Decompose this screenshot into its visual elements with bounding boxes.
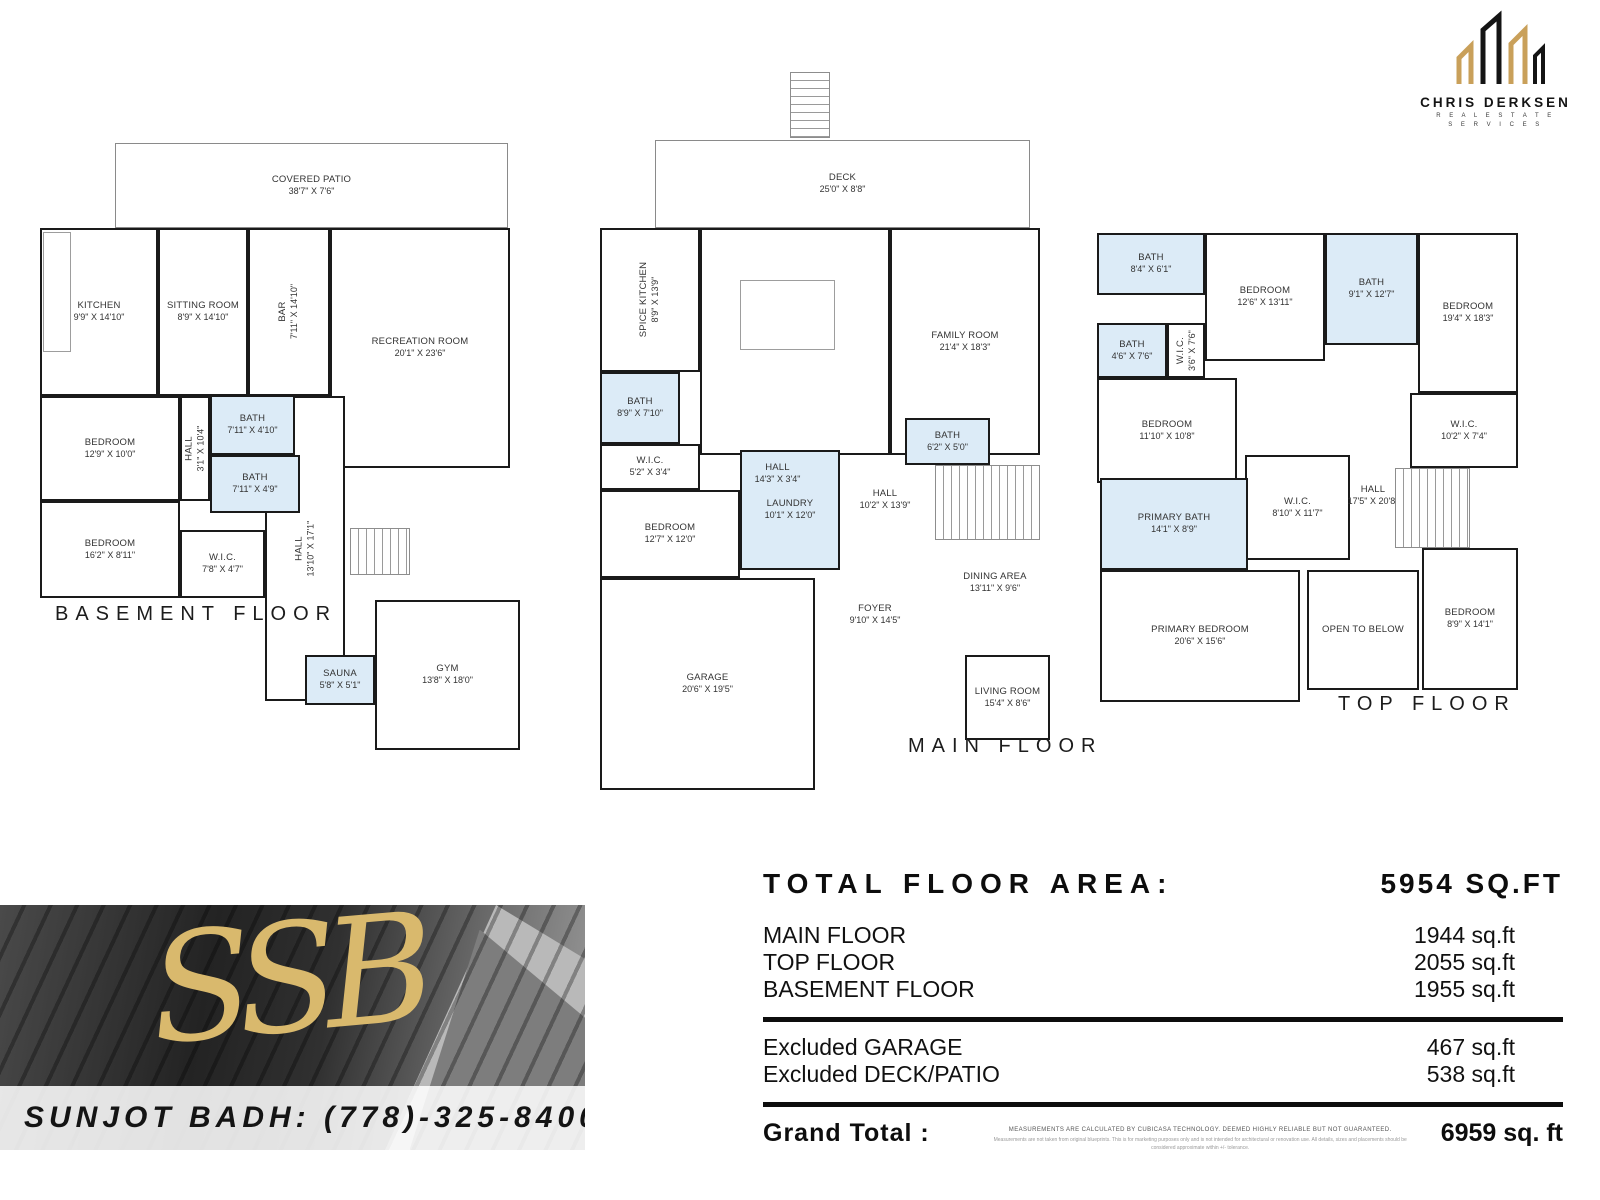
room-name: BAR xyxy=(277,284,289,339)
room-dims: 4'6" X 7'6" xyxy=(1112,351,1153,362)
room-basement-hall-small: HALL3'1" X 10'4" xyxy=(180,396,210,501)
room-basement-bedroom-2: BEDROOM16'2" X 8'11" xyxy=(40,501,180,598)
room-name: BEDROOM xyxy=(1443,301,1494,313)
room-recreation-room: RECREATION ROOM20'1" X 23'6" xyxy=(330,228,510,468)
room-name: BEDROOM xyxy=(85,538,136,550)
row-label: MAIN FLOOR xyxy=(763,922,906,949)
row-label: TOP FLOOR xyxy=(763,949,895,976)
room-top-bedroom-2: BEDROOM19'4" X 18'3" xyxy=(1418,233,1518,393)
room-dims: 8'9" X 7'10" xyxy=(617,408,663,419)
room-dims: 21'4" X 18'3" xyxy=(931,342,998,353)
brokerage-subtitle-2: S E R V I C E S xyxy=(1398,122,1593,128)
summary-row-top: TOP FLOOR 2055 sq.ft xyxy=(763,949,1563,976)
room-name: W.I.C. xyxy=(1272,496,1322,508)
stairs-top xyxy=(1395,468,1470,548)
room-name: SAUNA xyxy=(320,668,361,680)
room-dims: 8'9" X 13'9" xyxy=(650,262,661,337)
room-name: KITCHEN xyxy=(74,300,125,312)
room-spice-kitchen: SPICE KITCHEN8'9" X 13'9" xyxy=(600,228,700,372)
grand-total-label: Grand Total : xyxy=(763,1119,930,1148)
room-basement-bath-1: BATH7'11" X 4'10" xyxy=(210,395,295,455)
stairs-basement xyxy=(350,528,410,575)
room-name: BATH xyxy=(232,472,277,484)
excluded-rows: Excluded GARAGE 467 sq.ft Excluded DECK/… xyxy=(763,1034,1563,1088)
room-primary-bath: PRIMARY BATH14'1" X 8'9" xyxy=(1100,478,1248,570)
room-name: HALL xyxy=(1348,484,1399,496)
room-name: HALL xyxy=(183,426,195,472)
row-label: Excluded DECK/PATIO xyxy=(763,1061,1000,1088)
room-name: BATH xyxy=(1112,339,1153,351)
room-dims: 12'9" X 10'0" xyxy=(85,449,136,460)
room-covered-patio: COVERED PATIO38'7" X 7'6" xyxy=(115,143,508,228)
room-name: GYM xyxy=(422,663,473,675)
brokerage-subtitle-1: R E A L E S T A T E xyxy=(1398,113,1593,119)
room-garage: GARAGE20'6" X 19'5" xyxy=(600,578,815,790)
room-foyer: FOYER9'10" X 14'5" xyxy=(815,585,935,645)
room-dims: 13'11" X 9'6" xyxy=(963,583,1026,594)
grand-total-value: 6959 sq. ft xyxy=(1441,1119,1563,1148)
floor-plan-flyer: CHRIS DERKSEN R E A L E S T A T E S E R … xyxy=(0,0,1600,1200)
top-floor-title: TOP FLOOR xyxy=(1338,693,1516,716)
room-name: FOYER xyxy=(850,603,901,615)
room-dims: 10'2" X 7'4" xyxy=(1441,431,1487,442)
room-dims: 9'9" X 14'10" xyxy=(74,312,125,323)
room-name: BATH xyxy=(617,396,663,408)
floorplan-main: DECK25'0" X 8'8" SPICE KITCHEN8'9" X 13'… xyxy=(570,65,1050,800)
summary-row-main: MAIN FLOOR 1944 sq.ft xyxy=(763,922,1563,949)
room-name: GARAGE xyxy=(682,672,733,684)
floorplan-top: BATH8'4" X 6'1" BEDROOM12'6" X 13'11" BA… xyxy=(1093,228,1525,723)
divider-rule-1 xyxy=(763,1017,1563,1022)
room-name: W.I.C. xyxy=(1441,419,1487,431)
room-living-room: LIVING ROOM15'4" X 8'6" xyxy=(965,655,1050,740)
room-name: HALL xyxy=(860,488,911,500)
room-dims: 8'9" X 14'1" xyxy=(1445,619,1496,630)
room-top-bath-3: BATH4'6" X 7'6" xyxy=(1097,323,1167,378)
room-main-bedroom: BEDROOM12'7" X 12'0" xyxy=(600,490,740,578)
floorplan-basement: COVERED PATIO38'7" X 7'6" KITCHEN9'9" X … xyxy=(35,140,525,805)
room-dims: 15'4" X 8'6" xyxy=(975,698,1041,709)
room-top-bath-2: BATH9'1" X 12'7" xyxy=(1325,233,1418,345)
room-name: LAUNDRY xyxy=(765,498,816,510)
room-dims: 5'2" X 3'4" xyxy=(630,467,671,478)
room-name: W.I.C. xyxy=(630,455,671,467)
room-dims: 13'8" X 18'0" xyxy=(422,675,473,686)
room-dims: 8'4" X 6'1" xyxy=(1131,264,1172,275)
divider-rule-2 xyxy=(763,1102,1563,1107)
row-value: 1944 sq.ft xyxy=(1414,922,1563,949)
room-dims: 14'3" X 3'4" xyxy=(755,474,801,485)
room-dims: 7'11" X 4'10" xyxy=(227,425,277,436)
agent-contact: SUNJOT BADH: (778)-325-8400 xyxy=(0,1101,585,1135)
room-name: FAMILY ROOM xyxy=(931,330,998,342)
brokerage-name: CHRIS DERKSEN xyxy=(1398,95,1593,110)
room-gym: GYM13'8" X 18'0" xyxy=(375,600,520,750)
room-name: BEDROOM xyxy=(1237,285,1292,297)
room-dims: 16'2" X 8'11" xyxy=(85,550,136,561)
room-name: SITTING ROOM xyxy=(167,300,239,312)
room-name: BATH xyxy=(227,413,277,425)
room-main-hall-1: HALL14'3" X 3'4" xyxy=(700,455,855,493)
room-name: OPEN TO BELOW xyxy=(1322,624,1404,636)
room-dims: 9'10" X 14'5" xyxy=(850,615,901,626)
room-name: LIVING ROOM xyxy=(975,686,1041,698)
ssb-monogram: SSB xyxy=(143,905,428,1078)
room-top-bedroom-3: BEDROOM11'10" X 10'8" xyxy=(1097,378,1237,483)
room-dims: 25'0" X 8'8" xyxy=(820,184,866,195)
stairs-main xyxy=(935,465,1040,540)
total-floor-area-value: 5954 SQ.FT xyxy=(1380,868,1563,900)
room-top-bedroom-1: BEDROOM12'6" X 13'11" xyxy=(1205,233,1325,361)
excluded-row-deck-patio: Excluded DECK/PATIO 538 sq.ft xyxy=(763,1061,1563,1088)
stairs-deck xyxy=(790,72,830,138)
room-name: BATH xyxy=(927,430,968,442)
room-name: BEDROOM xyxy=(1139,419,1194,431)
room-basement-bedroom-1: BEDROOM12'9" X 10'0" xyxy=(40,396,180,501)
room-dims: 3'6" X 7'6" xyxy=(1186,330,1197,371)
room-basement-bath-2: BATH7'11" X 4'9" xyxy=(210,455,300,513)
room-basement-wic: W.I.C.7'8" X 4'7" xyxy=(180,530,265,598)
room-name: RECREATION ROOM xyxy=(372,336,469,348)
agent-photo-block: SSB SUNJOT BADH: (778)-325-8400 xyxy=(0,905,585,1150)
room-dims: 13'10" X 17'1" xyxy=(305,521,316,577)
room-main-bath-1: BATH8'9" X 7'10" xyxy=(600,372,680,444)
room-top-bath-1: BATH8'4" X 6'1" xyxy=(1097,233,1205,295)
room-top-wic-2: W.I.C.10'2" X 7'4" xyxy=(1410,393,1518,468)
room-dims: 7'8" X 4'7" xyxy=(202,564,243,575)
room-dims: 12'7" X 12'0" xyxy=(645,534,696,545)
room-dims: 9'1" X 12'7" xyxy=(1349,289,1395,300)
room-dims: 3'1" X 10'4" xyxy=(195,426,206,472)
summary-heading: TOTAL FLOOR AREA: 5954 SQ.FT xyxy=(763,868,1563,900)
row-value: 467 sq.ft xyxy=(1427,1034,1563,1061)
room-name: DECK xyxy=(820,172,866,184)
room-dims: 7'11" X 4'9" xyxy=(232,484,277,495)
room-dims: 12'6" X 13'11" xyxy=(1237,297,1292,308)
room-name: PRIMARY BEDROOM xyxy=(1151,624,1249,636)
total-floor-area-label: TOTAL FLOOR AREA: xyxy=(763,868,1173,900)
row-value: 2055 sq.ft xyxy=(1414,949,1563,976)
room-dims: 8'9" X 14'10" xyxy=(167,312,239,323)
room-main-wic: W.I.C.5'2" X 3'4" xyxy=(600,444,700,490)
room-dims: 20'6" X 15'6" xyxy=(1151,636,1249,647)
room-name: COVERED PATIO xyxy=(272,174,351,186)
room-dims: 38'7" X 7'6" xyxy=(272,186,351,197)
room-dims: 11'10" X 10'8" xyxy=(1139,431,1194,442)
room-name: BEDROOM xyxy=(85,437,136,449)
room-name: PRIMARY BATH xyxy=(1138,512,1211,524)
brokerage-logo: CHRIS DERKSEN R E A L E S T A T E S E R … xyxy=(1398,8,1593,128)
room-dims: 10'1" X 12'0" xyxy=(765,510,816,521)
room-name: BATH xyxy=(1349,277,1395,289)
room-name: BATH xyxy=(1131,252,1172,264)
room-dims: 10'2" X 13'9" xyxy=(860,500,911,511)
room-name: W.I.C. xyxy=(202,552,243,564)
room-sitting-room: SITTING ROOM8'9" X 14'10" xyxy=(158,228,248,396)
excluded-row-garage: Excluded GARAGE 467 sq.ft xyxy=(763,1034,1563,1061)
buildings-logo-icon xyxy=(1421,8,1571,88)
room-dims: 8'10" X 11'7" xyxy=(1272,508,1322,519)
basement-floor-title: BASEMENT FLOOR xyxy=(55,603,337,626)
room-sauna: SAUNA5'8" X 5'1" xyxy=(305,655,375,705)
room-dims: 7'11" X 14'10" xyxy=(289,284,300,339)
room-name: HALL xyxy=(293,521,305,577)
grand-total-row: Grand Total : MEASUREMENTS ARE CALCULATE… xyxy=(763,1119,1563,1152)
room-dims: 19'4" X 18'3" xyxy=(1443,313,1494,324)
room-deck: DECK25'0" X 8'8" xyxy=(655,140,1030,228)
disclaimer: MEASUREMENTS ARE CALCULATED BY CUBICASA … xyxy=(990,1127,1411,1152)
room-main-hall-2: HALL10'2" X 13'9" xyxy=(840,435,930,565)
row-value: 1955 sq.ft xyxy=(1414,976,1563,1003)
room-dims: 17'5" X 20'8" xyxy=(1348,496,1399,507)
room-top-bedroom-4: BEDROOM8'9" X 14'1" xyxy=(1422,548,1518,690)
disclaimer-line-2: Measurements are not taken from original… xyxy=(990,1137,1411,1152)
room-dims: 14'1" X 8'9" xyxy=(1138,524,1211,535)
row-label: Excluded GARAGE xyxy=(763,1034,962,1061)
room-dims: 20'1" X 23'6" xyxy=(372,348,469,359)
contact-band: SUNJOT BADH: (778)-325-8400 xyxy=(0,1086,585,1150)
floor-area-summary: TOTAL FLOOR AREA: 5954 SQ.FT MAIN FLOOR … xyxy=(763,868,1563,1152)
summary-row-basement: BASEMENT FLOOR 1955 sq.ft xyxy=(763,976,1563,1003)
room-name: W.I.C. xyxy=(1174,330,1186,371)
room-top-wic-1: W.I.C.3'6" X 7'6" xyxy=(1167,323,1205,378)
room-primary-bedroom: PRIMARY BEDROOM20'6" X 15'6" xyxy=(1100,570,1300,702)
disclaimer-line-1: MEASUREMENTS ARE CALCULATED BY CUBICASA … xyxy=(990,1127,1411,1133)
room-dining-area: DINING AREA13'11" X 9'6" xyxy=(950,535,1040,630)
room-bar: BAR7'11" X 14'10" xyxy=(248,228,330,396)
row-value: 538 sq.ft xyxy=(1427,1061,1563,1088)
floor-rows: MAIN FLOOR 1944 sq.ft TOP FLOOR 2055 sq.… xyxy=(763,922,1563,1003)
kitchen-counter xyxy=(43,232,71,352)
room-name: BEDROOM xyxy=(1445,607,1496,619)
room-open-to-below: OPEN TO BELOW xyxy=(1307,570,1419,690)
room-name: DINING AREA xyxy=(963,571,1026,583)
kitchen-island xyxy=(740,280,835,350)
room-name: HALL xyxy=(755,462,801,474)
room-dims: 5'8" X 5'1" xyxy=(320,680,361,691)
room-dims: 20'6" X 19'5" xyxy=(682,684,733,695)
row-label: BASEMENT FLOOR xyxy=(763,976,975,1003)
main-floor-title: MAIN FLOOR xyxy=(908,735,1102,758)
room-name: BEDROOM xyxy=(645,522,696,534)
room-dims: 6'2" X 5'0" xyxy=(927,442,968,453)
room-name: SPICE KITCHEN xyxy=(638,262,650,337)
